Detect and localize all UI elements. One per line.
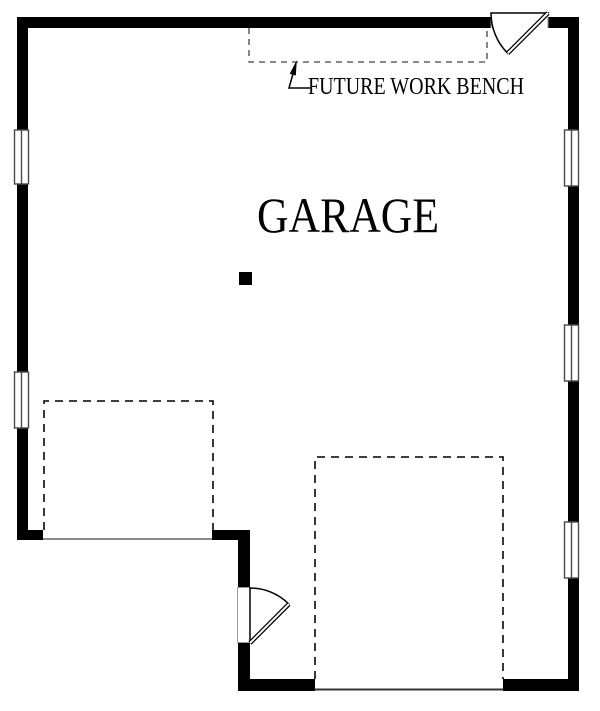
future-work-bench-label: FUTURE WORK BENCH	[308, 74, 524, 100]
west-return-wall	[17, 530, 43, 540]
window-west-lower	[15, 372, 29, 428]
door-jambs	[238, 17, 549, 643]
south-wall-east-segment	[503, 679, 579, 691]
east-wall-lower-middle	[568, 381, 579, 522]
room-label: GARAGE	[257, 187, 439, 243]
east-wall-lower	[568, 578, 579, 691]
mid-return-wall	[212, 530, 250, 540]
west-wall-middle	[17, 184, 28, 372]
window-west-upper	[15, 130, 29, 184]
mid-wall-upper	[238, 540, 250, 587]
walls	[17, 17, 579, 691]
top-wall-west-segment	[17, 17, 491, 28]
leader-line	[289, 63, 310, 88]
east-wall-upper-middle	[568, 186, 579, 325]
future-work-bench-outline	[249, 28, 487, 62]
west-wall-upper	[17, 17, 28, 130]
entry-door-bottom	[250, 588, 289, 643]
bottom-door-opening-frame	[238, 588, 251, 643]
bench-leader-arrow	[289, 60, 310, 88]
entry-door-top	[491, 13, 548, 53]
floor-plan-drawing: GARAGE FUTURE WORK BENCH	[0, 0, 600, 711]
west-wall-lower	[17, 428, 28, 540]
east-wall-upper	[568, 17, 579, 130]
doors	[250, 13, 548, 643]
window-east-lower	[565, 522, 579, 578]
south-wall-west-segment	[238, 679, 315, 691]
structural-post	[239, 272, 252, 285]
overhead-door-bay-south	[315, 457, 503, 679]
window-east-middle	[565, 325, 579, 381]
window-east-upper	[565, 130, 579, 186]
floor-plan-canvas: GARAGE FUTURE WORK BENCH	[0, 0, 600, 711]
overhead-door-bay-west	[44, 401, 213, 530]
mid-wall-lower	[238, 643, 250, 679]
